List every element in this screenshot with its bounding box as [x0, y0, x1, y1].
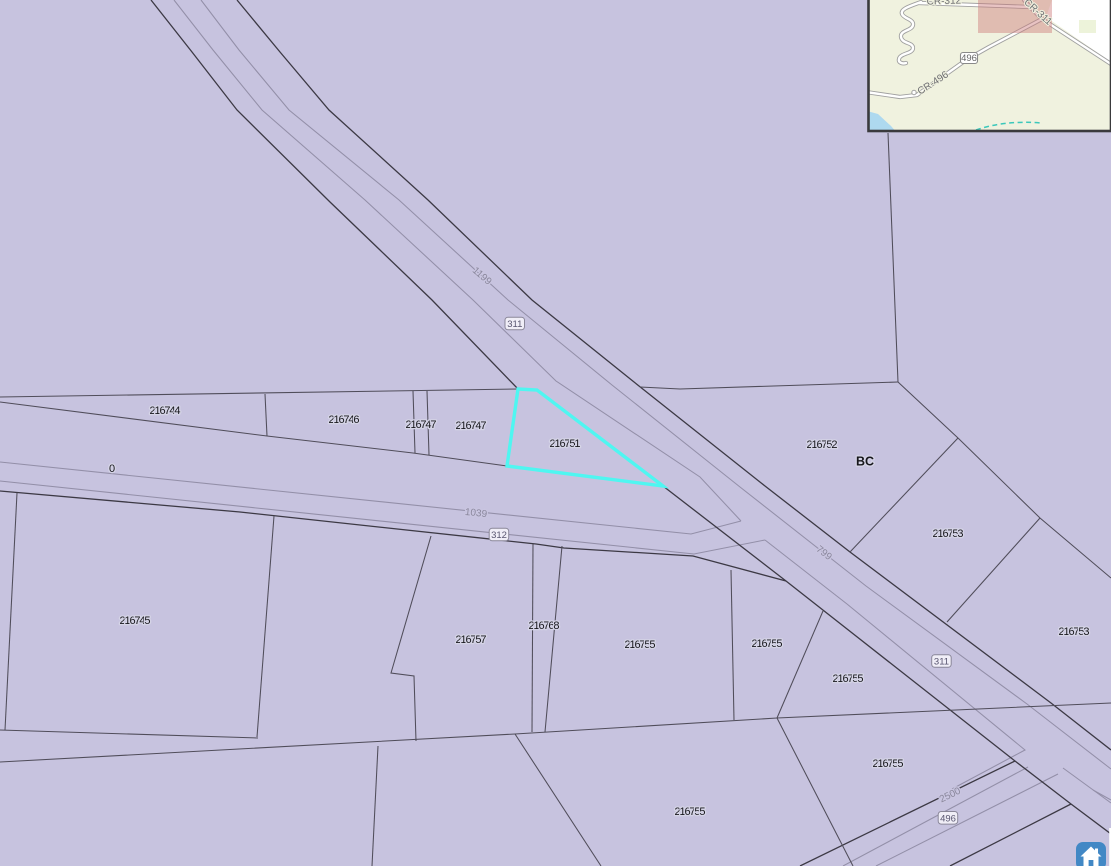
- svg-text:216753: 216753: [1059, 626, 1090, 638]
- svg-text:216755: 216755: [833, 673, 864, 685]
- svg-text:216755: 216755: [675, 806, 706, 818]
- svg-text:216753: 216753: [933, 528, 964, 540]
- svg-text:311: 311: [934, 657, 949, 668]
- svg-text:CR-312: CR-312: [926, 0, 961, 8]
- svg-text:216747: 216747: [406, 419, 437, 431]
- svg-text:BC: BC: [856, 455, 874, 469]
- svg-text:311: 311: [507, 319, 522, 330]
- svg-text:216744: 216744: [150, 405, 181, 417]
- svg-text:216768: 216768: [529, 620, 560, 632]
- svg-text:312: 312: [491, 530, 507, 541]
- svg-text:216751: 216751: [550, 438, 581, 450]
- svg-text:216752: 216752: [807, 439, 838, 451]
- svg-text:216747: 216747: [456, 420, 487, 432]
- svg-text:216745: 216745: [120, 615, 151, 627]
- svg-text:216755: 216755: [625, 639, 656, 651]
- svg-text:0: 0: [109, 463, 115, 475]
- svg-text:216757: 216757: [456, 634, 487, 646]
- svg-text:496: 496: [961, 53, 977, 64]
- svg-text:216755: 216755: [752, 638, 783, 650]
- svg-text:496: 496: [940, 813, 956, 824]
- svg-text:216746: 216746: [329, 414, 360, 426]
- svg-text:216755: 216755: [873, 758, 904, 770]
